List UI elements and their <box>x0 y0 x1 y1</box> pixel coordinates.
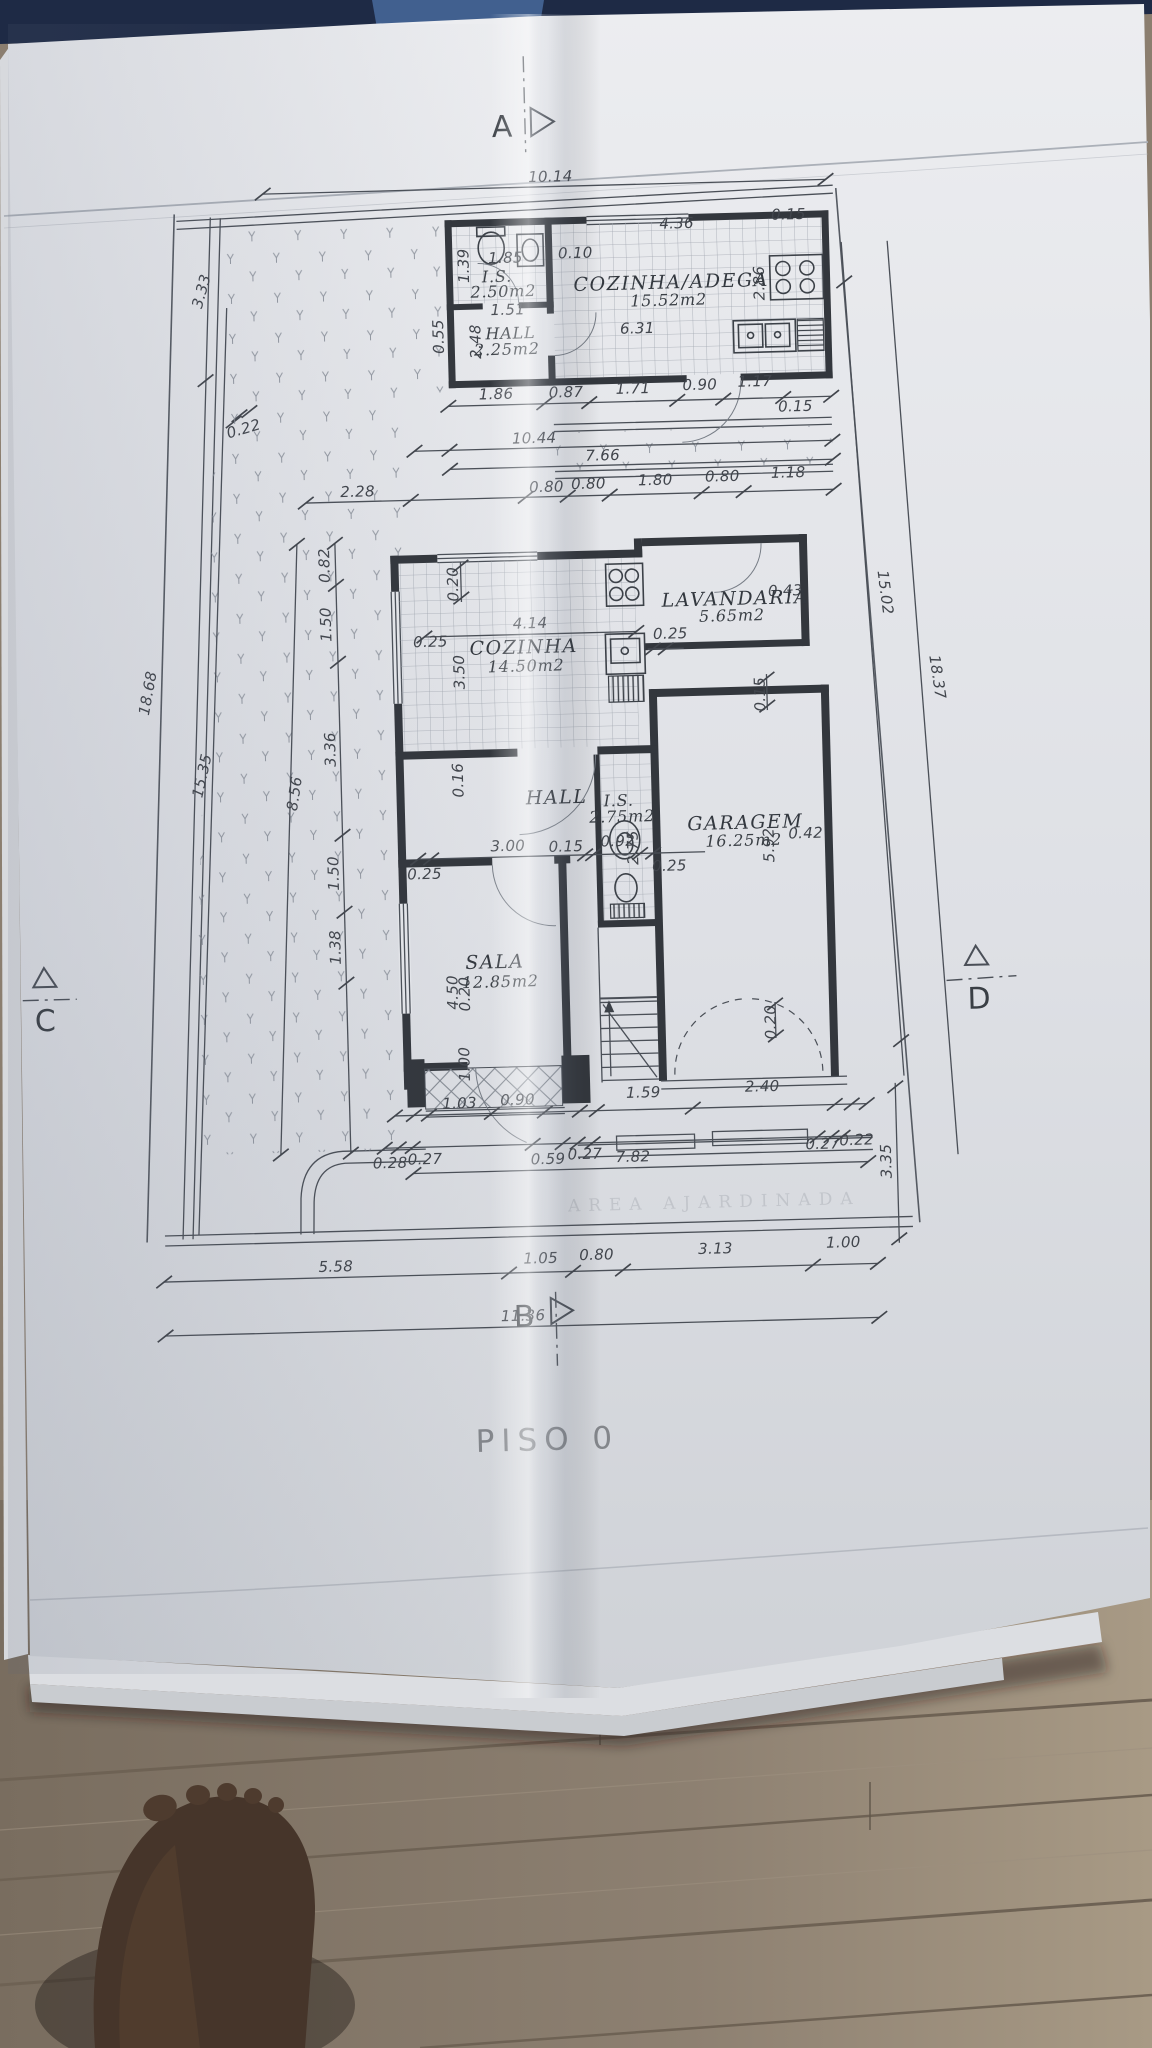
dim-label: 0.25 <box>653 624 688 643</box>
dim-label: 2.75 <box>623 830 642 865</box>
paper-lighting <box>8 14 600 1698</box>
dim-label: 1.71 <box>615 379 650 398</box>
room-area: 16.25m2 <box>705 830 782 851</box>
room-area: 5.65m2 <box>699 605 765 626</box>
section-marker-d: D <box>967 981 991 1017</box>
dim-label: 0.80 <box>705 467 740 486</box>
dim-label: 7.82 <box>616 1147 651 1166</box>
dim-label: 0.25 <box>652 856 687 875</box>
drainer-icon <box>797 318 824 351</box>
dim-label: 0.90 <box>682 375 717 394</box>
dim-label: 6.31 <box>620 319 655 338</box>
dim-label: 0.20 <box>761 1005 780 1040</box>
dim-label: 3.35 <box>877 1144 896 1179</box>
floor-plan-photo: 10.14 4.36 0.15 0.10 2.86 6.31 1.85 1.39… <box>0 0 1152 2048</box>
dim-label: 4.36 <box>659 214 694 233</box>
dim-label: 0.27 <box>805 1134 840 1153</box>
dim-label: 1.59 <box>626 1083 661 1102</box>
dim-label: 1.18 <box>771 463 806 482</box>
dim-label: 2.40 <box>745 1077 780 1096</box>
dim-label: 1.17 <box>737 372 772 391</box>
appliance-icon <box>608 675 644 702</box>
dim-label: 0.15 <box>751 677 770 712</box>
dim-label: 0.15 <box>771 205 806 224</box>
dim-label: 3.13 <box>698 1239 733 1258</box>
room-area: 15.52m2 <box>630 290 707 311</box>
dim-label: 0.15 <box>778 397 813 416</box>
dim-label: 1.00 <box>826 1233 861 1252</box>
dim-label: 0.22 <box>839 1130 874 1149</box>
dim-label: 1.80 <box>638 470 673 489</box>
